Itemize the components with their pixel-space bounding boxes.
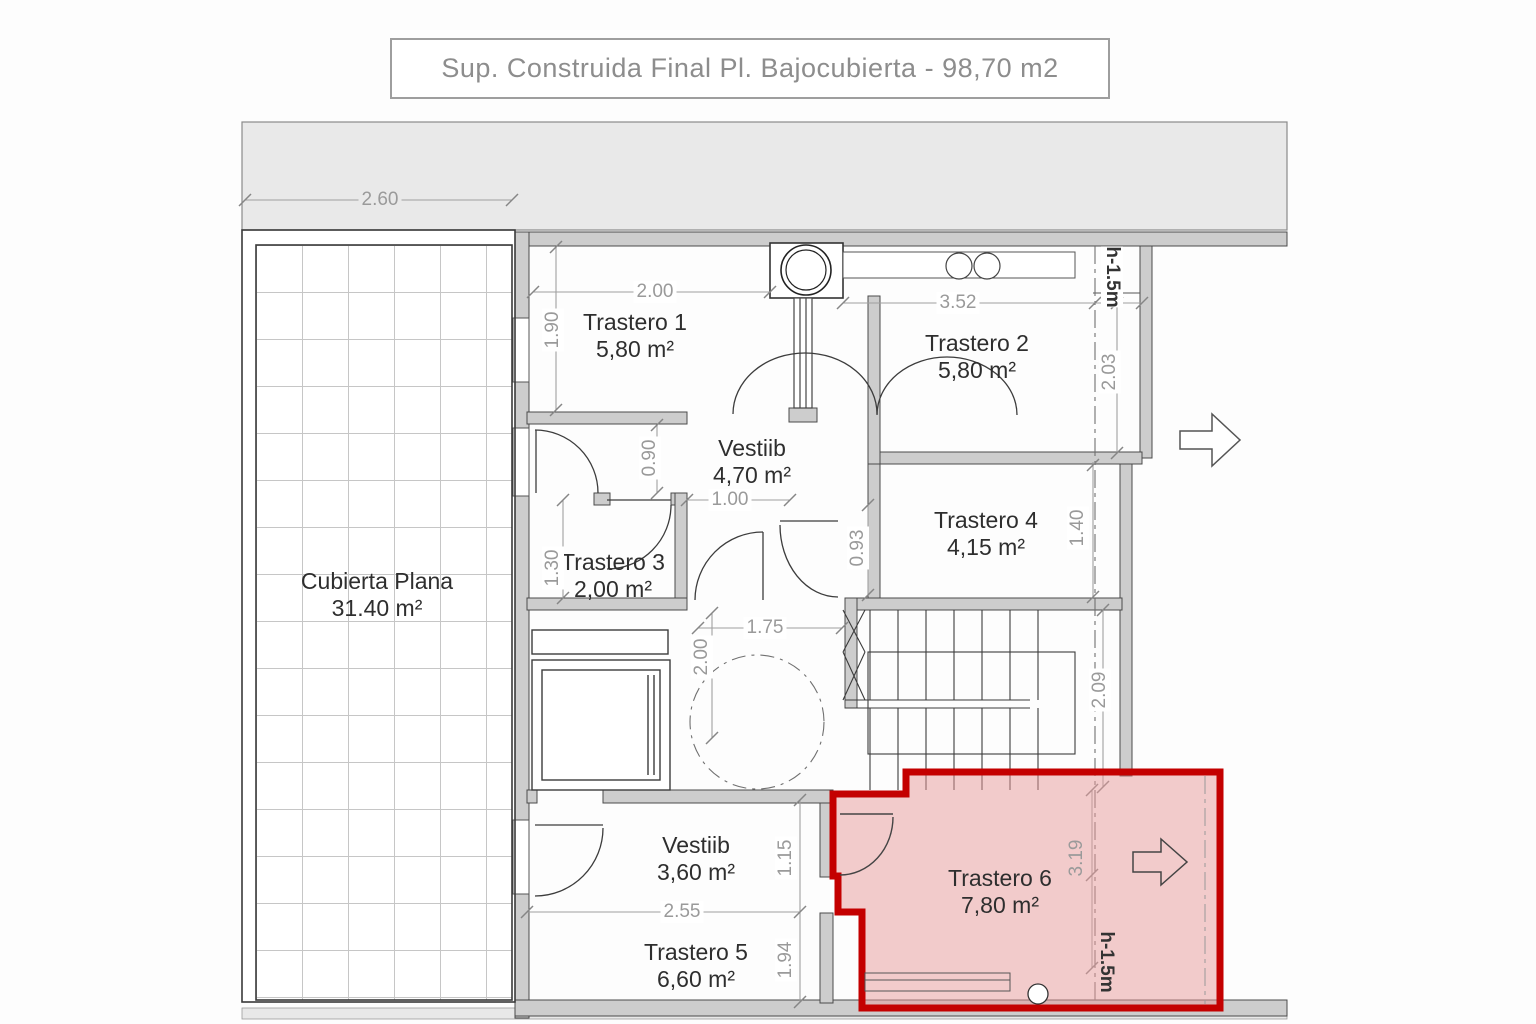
room-label-trastero-4: Trastero 44,15 m² <box>934 507 1038 561</box>
chimney <box>770 243 843 298</box>
title-box: Sup. Construida Final Pl. Bajocubierta -… <box>390 38 1110 99</box>
dim-vestib2-height: 1.15 <box>775 837 797 880</box>
dim-t1-height: 1.90 <box>542 309 564 352</box>
dim-t4-door: 0.93 <box>847 527 869 570</box>
room-label-trastero-3: Trastero 32,00 m² <box>561 549 665 603</box>
dim-t2-right-height: 2.03 <box>1099 351 1121 394</box>
dim-t6-height: 3.19 <box>1066 837 1088 880</box>
exit-arrow-icon <box>1180 414 1240 466</box>
height-note-bottom: h-1.5m <box>1095 931 1117 992</box>
elevator <box>532 630 670 790</box>
dim-t2-width: 3.52 <box>937 292 980 314</box>
dim-hall-opening: 1.00 <box>709 489 752 511</box>
floor-plan-drawing <box>0 0 1536 1024</box>
dim-t4-right-height: 1.40 <box>1067 507 1089 550</box>
dim-t5-height: 1.94 <box>775 939 797 982</box>
dim-vestib2-width: 2.55 <box>661 901 704 923</box>
height-note-top: h-1.5m <box>1101 246 1123 307</box>
dim-t1-width: 2.00 <box>634 281 677 303</box>
dim-t3-height: 1.30 <box>542 547 564 590</box>
room-label-trastero-1: Trastero 15,80 m² <box>583 309 687 363</box>
page-title: Sup. Construida Final Pl. Bajocubierta -… <box>441 53 1058 84</box>
roof-band <box>242 122 1287 230</box>
dim-terrace-width: 2.60 <box>359 189 402 211</box>
room-label-vestibulo-2: Vestiib3,60 m² <box>657 832 735 886</box>
dim-hall-height: 2.00 <box>691 636 713 679</box>
dim-vestib-opening: 0.90 <box>639 437 661 480</box>
room-label-trastero-6: Trastero 67,80 m² <box>948 865 1052 919</box>
dim-hall-width: 1.75 <box>744 617 787 639</box>
stairs <box>843 610 1075 790</box>
floor-plan-page: Sup. Construida Final Pl. Bajocubierta -… <box>0 0 1536 1024</box>
room-label-vestibulo-1: Vestiib4,70 m² <box>713 435 791 489</box>
dim-stairs-height: 2.09 <box>1089 669 1111 712</box>
room-label-trastero-5: Trastero 56,60 m² <box>644 939 748 993</box>
room-label-cubierta-plana: Cubierta Plana31.40 m² <box>301 568 453 622</box>
room-label-trastero-2: Trastero 25,80 m² <box>925 330 1029 384</box>
